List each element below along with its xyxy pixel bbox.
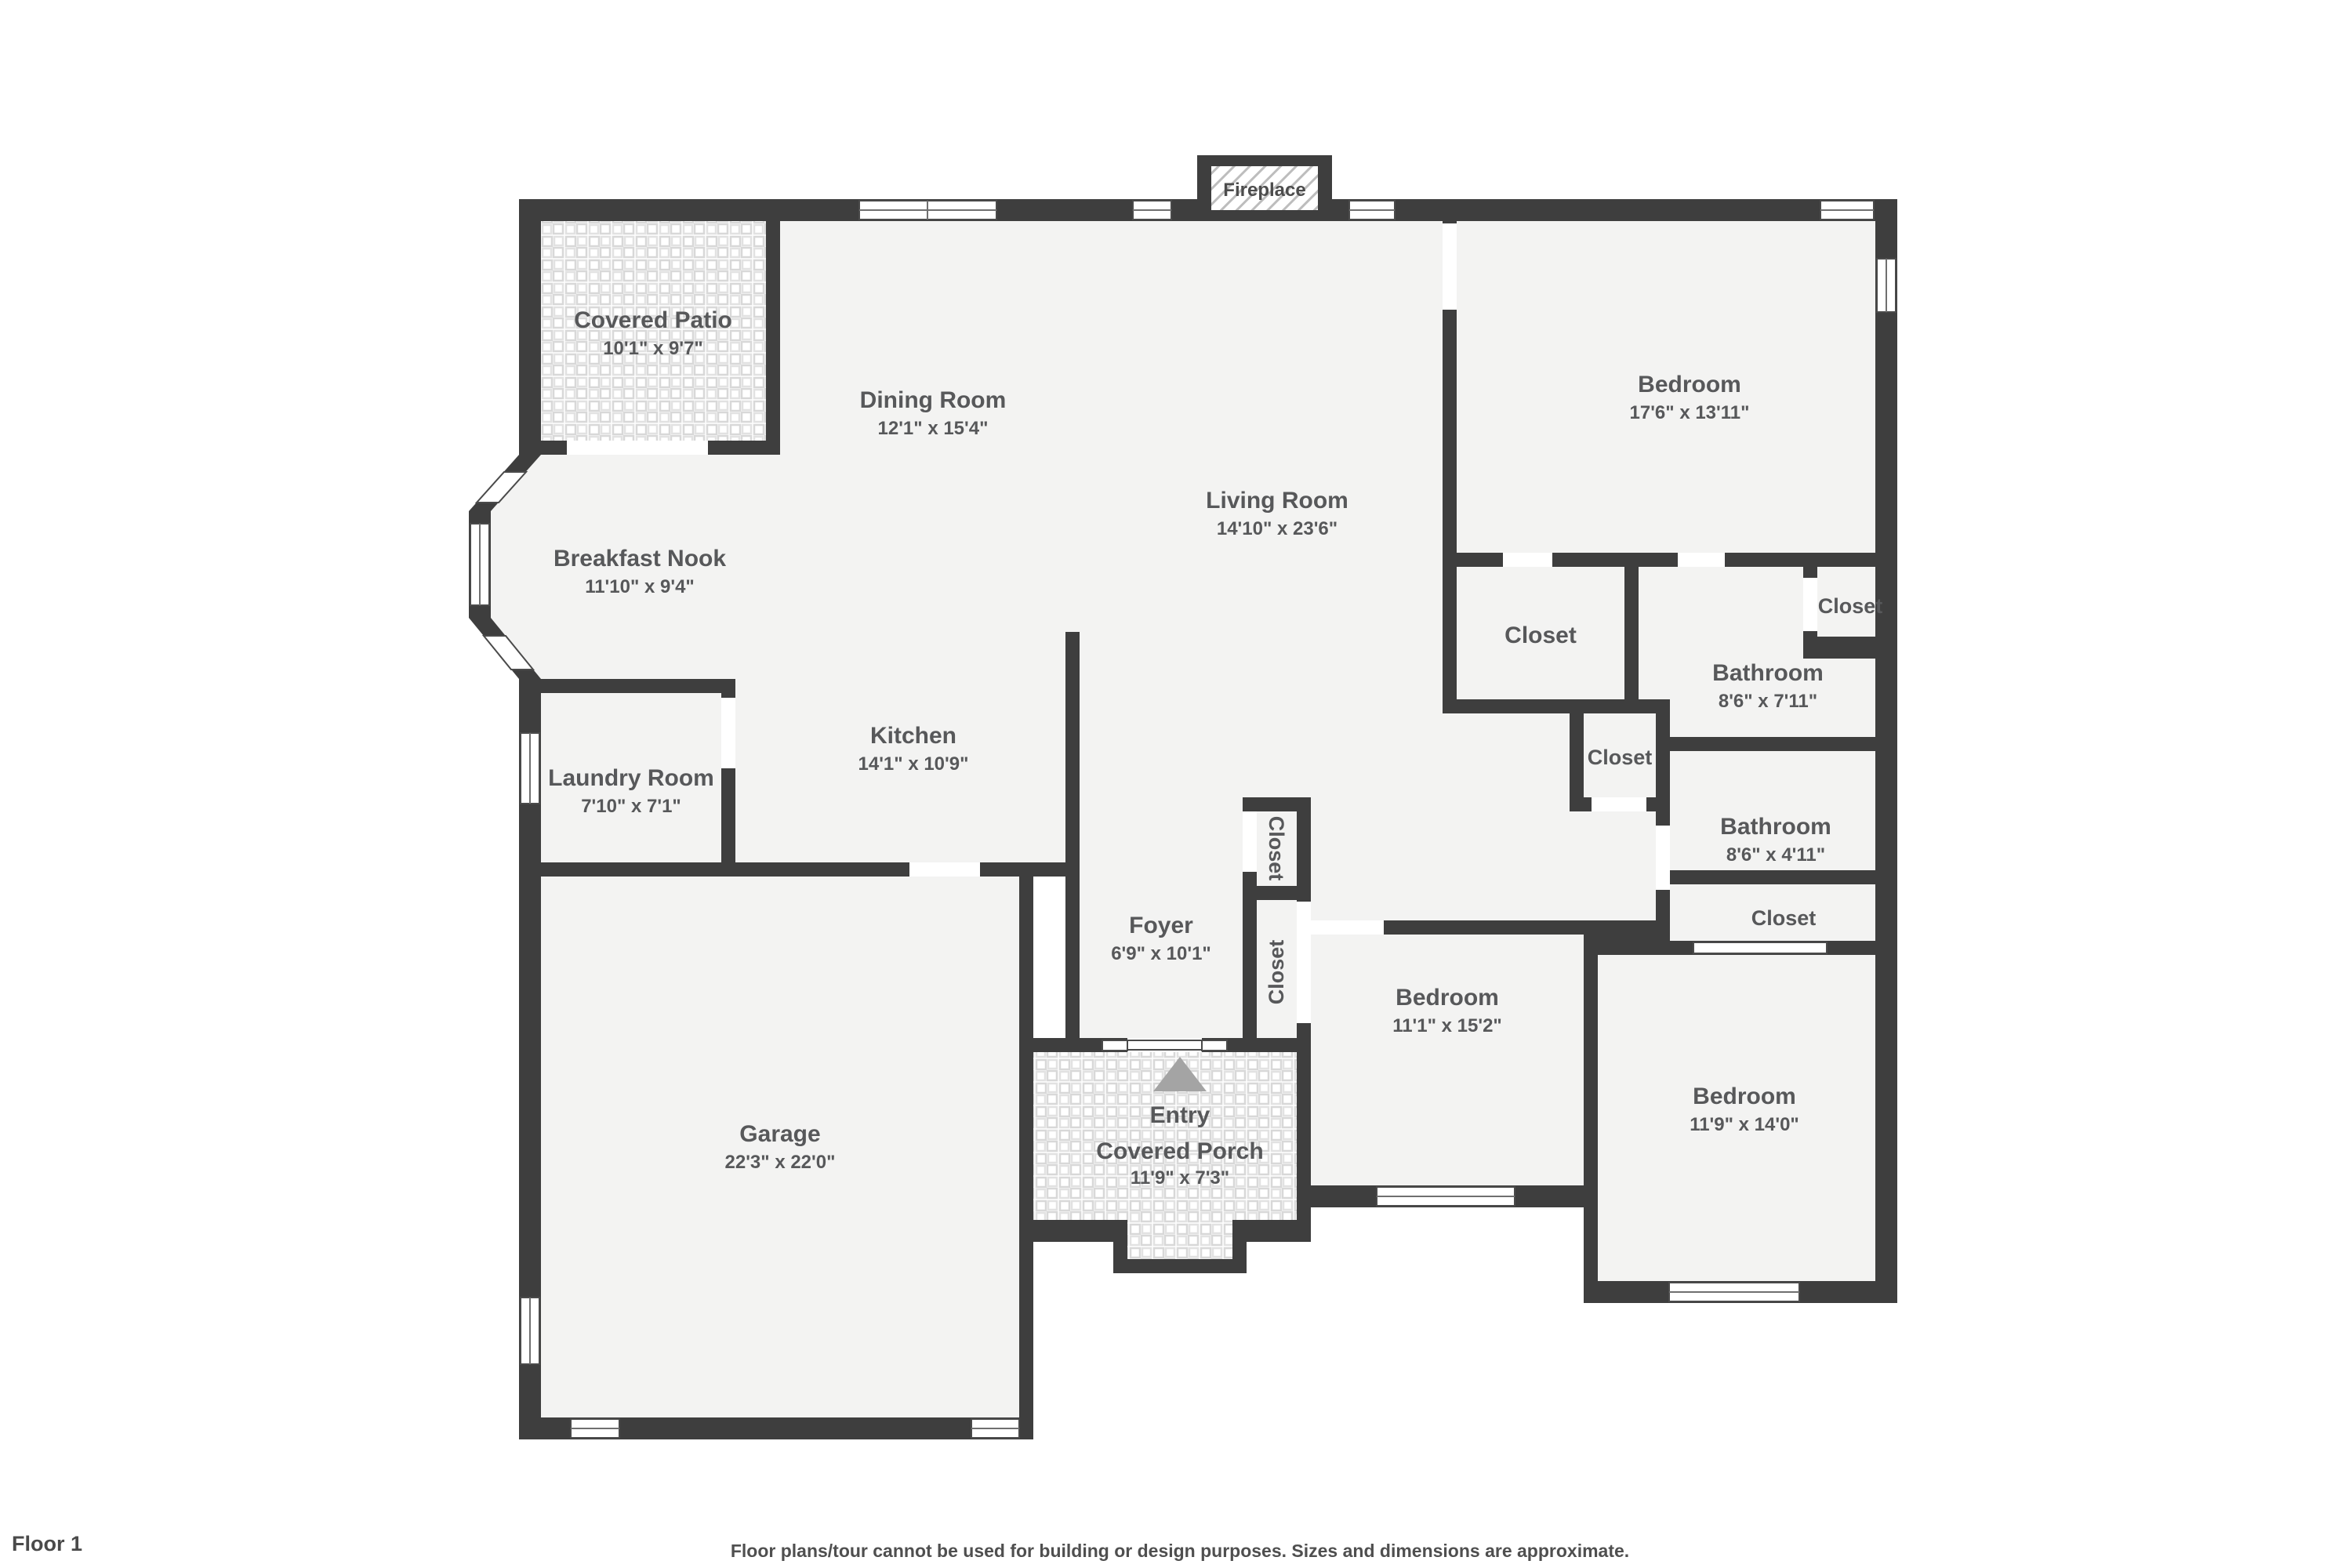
room-label: Closet <box>1504 622 1577 648</box>
floor-number-label: Floor 1 <box>12 1532 82 1555</box>
room-dims: 8'6" x 4'11" <box>1726 844 1825 866</box>
fireplace: Fireplace <box>1197 155 1332 221</box>
window <box>521 733 539 804</box>
entry-door-frame-left <box>1102 1040 1127 1051</box>
window <box>571 1419 619 1438</box>
fireplace-label: Fireplace <box>1223 180 1305 201</box>
room-dims: 11'9" x 7'3" <box>1131 1167 1229 1189</box>
room-dims: 12'1" x 15'4" <box>878 418 989 439</box>
room-label: Garage <box>739 1121 820 1147</box>
room-label: Laundry Room <box>548 765 714 791</box>
room-label: Bedroom <box>1693 1083 1796 1109</box>
room-label: Bedroom <box>1396 985 1499 1011</box>
room-label: Bathroom <box>1720 814 1831 840</box>
room-dims: 14'1" x 10'9" <box>858 753 969 775</box>
room-label: Closet <box>1818 594 1883 618</box>
entry-door <box>1102 1038 1227 1052</box>
room-label: Living Room <box>1206 488 1348 514</box>
room-label: Covered Porch <box>1096 1138 1263 1164</box>
room-dims: 14'10" x 23'6" <box>1217 518 1338 539</box>
room-label: Bedroom <box>1638 372 1741 397</box>
window <box>470 524 489 605</box>
room-label: Closet <box>1588 746 1653 769</box>
room-closet-bedroom-mid: Closet <box>1265 940 1288 1005</box>
room-label: Entry <box>1150 1102 1210 1128</box>
room-dims: 10'1" x 9'7" <box>603 338 703 359</box>
room-label: Covered Patio <box>574 307 732 333</box>
window <box>1349 201 1395 220</box>
room-entry: Entry <box>1150 1102 1210 1128</box>
room-closet-hall: Closet <box>1588 746 1653 769</box>
window <box>1133 201 1171 220</box>
room-label: Breakfast Nook <box>554 546 726 572</box>
window <box>1377 1187 1515 1206</box>
room-dims: 7'10" x 7'1" <box>581 796 681 817</box>
room-dims: 11'1" x 15'2" <box>1392 1015 1502 1036</box>
window <box>971 1419 1019 1438</box>
closet-br-threshold <box>1693 942 1827 953</box>
porch-step-floor <box>1127 1220 1232 1259</box>
room-closet-master: Closet <box>1504 622 1577 648</box>
room-label: Closet <box>1265 816 1288 881</box>
room-label: Closet <box>1265 940 1288 1005</box>
room-dims: 6'9" x 10'1" <box>1111 943 1211 964</box>
entry-door-frame-right <box>1202 1040 1227 1051</box>
room-dims: 11'9" x 14'0" <box>1690 1114 1799 1135</box>
room-label: Dining Room <box>860 387 1007 413</box>
window <box>859 201 996 220</box>
room-label: Bathroom <box>1712 660 1824 686</box>
window <box>1669 1283 1799 1301</box>
floor-plan-page: Fireplace Covered Patio 10'1" x 9'7" Din… <box>0 0 2352 1568</box>
room-dims: 11'10" x 9'4" <box>585 576 695 597</box>
window <box>1820 201 1874 220</box>
room-dims: 8'6" x 7'11" <box>1719 691 1817 712</box>
room-label: Foyer <box>1129 913 1193 938</box>
room-label: Closet <box>1751 906 1817 930</box>
room-dims: 17'6" x 13'11" <box>1630 402 1750 423</box>
floor-plan: Fireplace Covered Patio 10'1" x 9'7" Din… <box>0 0 2352 1568</box>
room-label: Kitchen <box>870 723 956 749</box>
room-closet-bedroom-br: Closet <box>1751 906 1817 930</box>
window <box>521 1298 539 1364</box>
room-dims: 22'3" x 22'0" <box>725 1152 836 1173</box>
disclaimer-text: Floor plans/tour cannot be used for buil… <box>731 1541 1629 1561</box>
room-closet-foyer: Closet <box>1265 816 1288 881</box>
window <box>1877 259 1896 312</box>
room-closet-top-right: Closet <box>1818 594 1883 618</box>
